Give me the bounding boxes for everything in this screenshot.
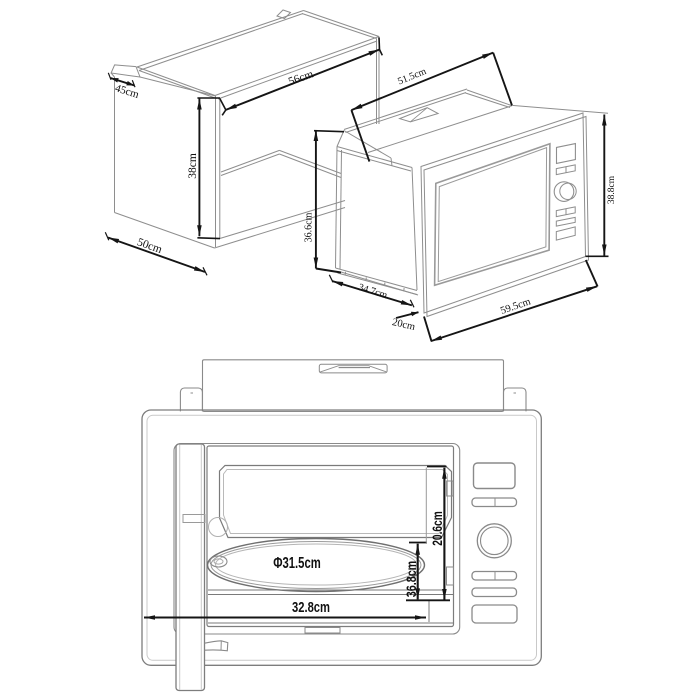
svg-text:32.8cm: 32.8cm: [292, 599, 330, 616]
svg-text:36.6cm: 36.6cm: [304, 212, 315, 242]
svg-text:Φ31.5cm: Φ31.5cm: [273, 555, 321, 572]
svg-text:20.6cm: 20.6cm: [430, 511, 445, 546]
svg-text:38.8cm: 38.8cm: [607, 175, 617, 204]
svg-text:36.8cm: 36.8cm: [404, 561, 419, 598]
svg-text:38cm: 38cm: [187, 153, 199, 179]
